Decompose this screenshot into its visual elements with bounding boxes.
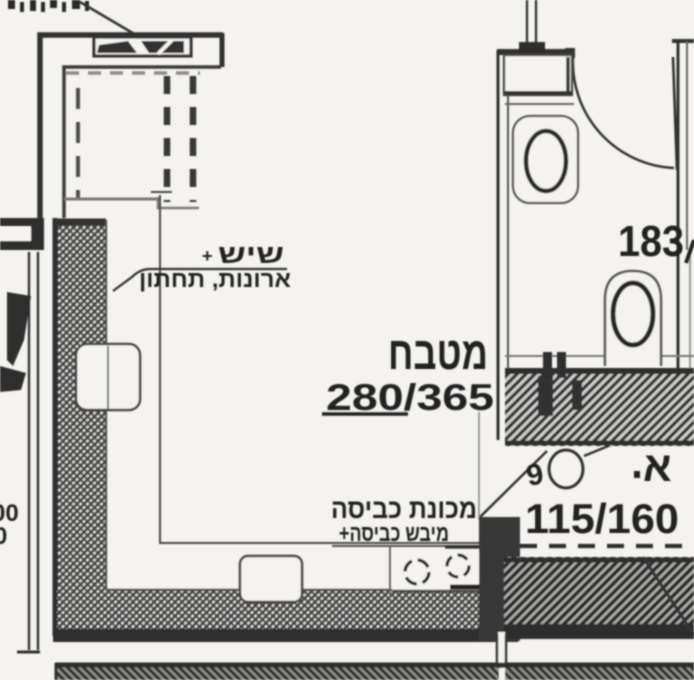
svg-text:+: + [202,246,213,266]
svg-text:א: א [643,443,672,490]
svg-text:0: 0 [0,523,7,550]
svg-text:280/365: 280/365 [326,377,494,418]
svg-text:ארונות, תחתון: ארונות, תחתון [139,266,291,292]
svg-text:+מיבש כביסה: +מיבש כביסה [339,520,449,546]
svg-text:שיש: שיש [218,239,284,269]
svg-text:183: 183 [618,217,684,266]
svg-text:מטבח: מטבח [388,327,488,379]
svg-text:115/160: 115/160 [525,495,679,542]
